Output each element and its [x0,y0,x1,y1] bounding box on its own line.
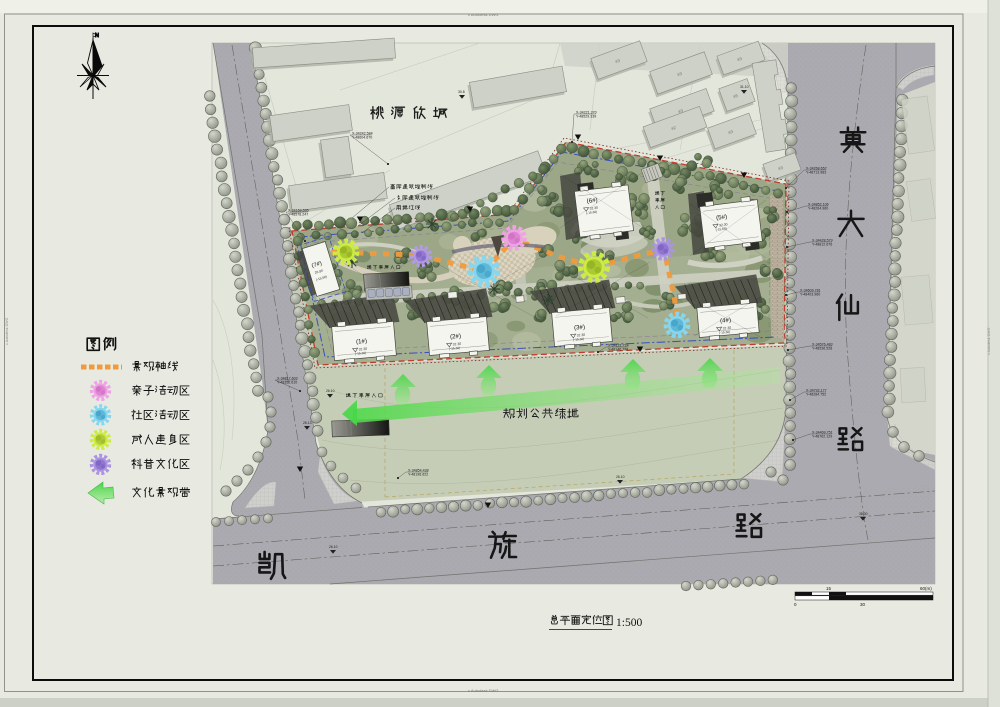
svg-text:30.8: 30.8 [458,90,465,94]
svg-text:c Autodesk DWG: c Autodesk DWG [987,327,991,355]
svg-text:31.10: 31.10 [740,85,749,89]
svg-text:Y-48352.610: Y-48352.610 [277,381,297,385]
svg-text:(3#): (3#) [574,324,586,332]
svg-text:1:500: 1:500 [616,617,642,629]
svg-text:Y-48264.960: Y-48264.960 [808,207,828,211]
svg-text:(4#): (4#) [720,317,732,325]
svg-text:30: 30 [860,602,866,607]
svg-text:Y-48146.798: Y-48146.798 [608,348,628,352]
svg-text:Y-48762.129: Y-48762.129 [812,435,832,439]
svg-text:(6#): (6#) [586,197,598,205]
svg-text:Y-48284.752: Y-48284.752 [806,393,826,397]
svg-text:c Autodesk DWG: c Autodesk DWG [5,317,9,345]
svg-text:Y-48403.960: Y-48403.960 [800,293,820,297]
svg-text:26.10: 26.10 [329,545,338,549]
svg-text:N: N [95,33,99,39]
svg-text:Y-48529.339: Y-48529.339 [576,115,596,119]
svg-text:15: 15 [826,586,832,591]
svg-text:26.10: 26.10 [616,475,625,479]
svg-text:Y-48604.670: Y-48604.670 [352,136,372,140]
svg-text:Y-48196.622: Y-48196.622 [408,473,428,477]
svg-text:(2#): (2#) [450,333,462,341]
svg-text:c Autodesk DWG: c Autodesk DWG [468,12,498,17]
svg-text:60(m): 60(m) [920,586,932,591]
svg-text:Y-48578.247: Y-48578.247 [288,213,308,217]
svg-text:(1#): (1#) [356,338,368,346]
svg-text:Y-48713.983: Y-48713.983 [806,171,826,175]
svg-text:Y-48536.528: Y-48536.528 [812,347,832,351]
svg-text:38.30: 38.30 [859,512,868,516]
svg-text:Y-48812.676: Y-48812.676 [812,243,832,247]
svg-text:26.10: 26.10 [326,389,335,393]
svg-text:(5#): (5#) [716,213,728,221]
svg-text:26.13: 26.13 [303,421,312,425]
svg-text:c Autodesk DWG: c Autodesk DWG [468,688,498,693]
